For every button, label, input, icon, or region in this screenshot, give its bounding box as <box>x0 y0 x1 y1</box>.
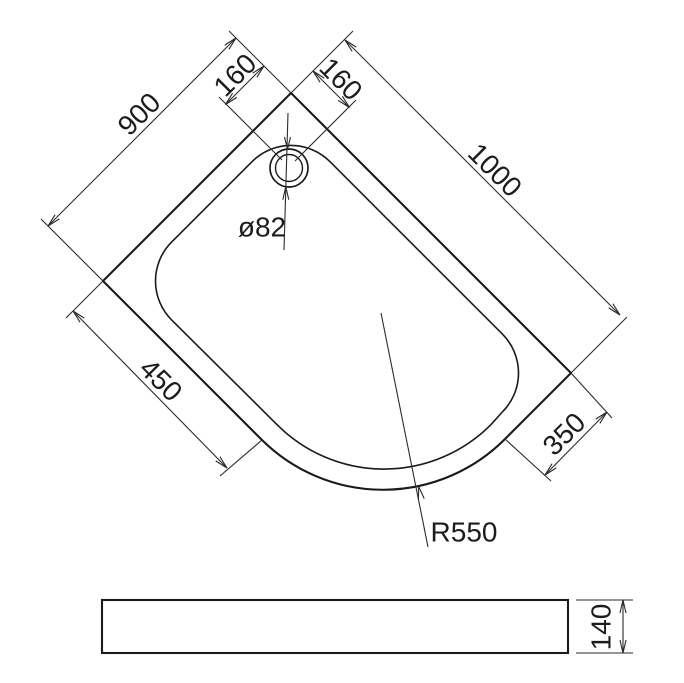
dim-160-right-extension-drain <box>295 100 356 161</box>
dim-140-label: 140 <box>586 604 617 651</box>
dim-140: 140 <box>576 600 633 653</box>
dim-1000-extension-right <box>571 317 627 373</box>
dim-900-extension-left <box>41 219 103 281</box>
dim-corner-radius: R550 <box>381 313 497 548</box>
side-profile-view: 140 <box>102 600 633 653</box>
dim-160-left: 160 <box>208 48 282 160</box>
dim-450-extension-tangent <box>220 440 262 476</box>
dim-radius-leader <box>381 313 428 547</box>
dim-350-extension-right <box>571 373 612 418</box>
dim-350-label: 350 <box>537 407 592 462</box>
dim-350: 350 <box>505 373 612 481</box>
dim-450-extension-left <box>66 281 103 318</box>
tray-inner-rim <box>155 145 518 469</box>
dim-160-right: 160 <box>295 52 368 161</box>
dim-drain-label: ø82 <box>238 212 286 243</box>
dim-radius-label: R550 <box>431 517 498 548</box>
dim-160-left-extension-drain <box>219 97 282 160</box>
dim-1000-label: 1000 <box>462 137 528 203</box>
shower-tray-drawing: 900 160 160 1000 450 <box>0 0 684 683</box>
profile-outline <box>102 600 568 653</box>
dim-radius-arrow <box>418 487 424 500</box>
dim-drain-diameter: ø82 <box>238 113 291 250</box>
drain-inner-circle <box>276 155 303 182</box>
dim-160-right-label: 160 <box>314 52 369 107</box>
dim-450-label: 450 <box>134 353 189 408</box>
technical-drawing-canvas: 900 160 160 1000 450 <box>0 0 684 683</box>
dim-900-label: 900 <box>112 87 167 142</box>
